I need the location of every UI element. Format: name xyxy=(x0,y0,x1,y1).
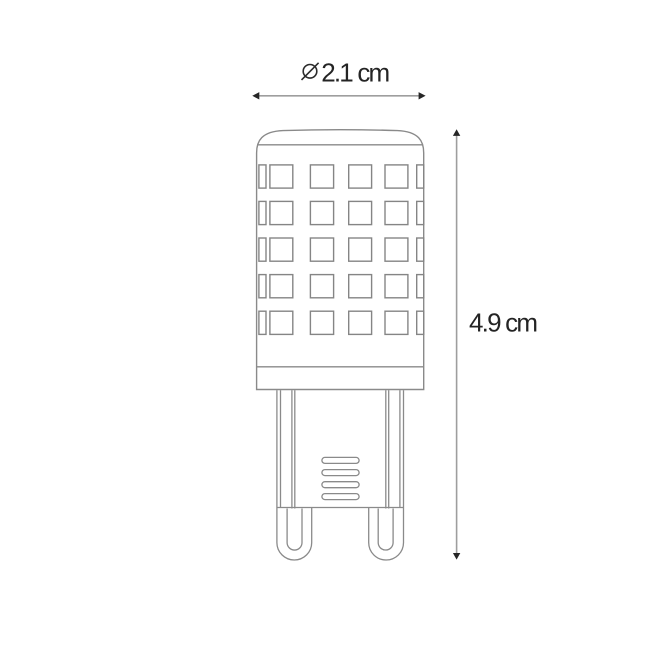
svg-text:4.9 cm: 4.9 cm xyxy=(469,308,536,338)
svg-text:2.1 cm: 2.1 cm xyxy=(321,57,388,87)
